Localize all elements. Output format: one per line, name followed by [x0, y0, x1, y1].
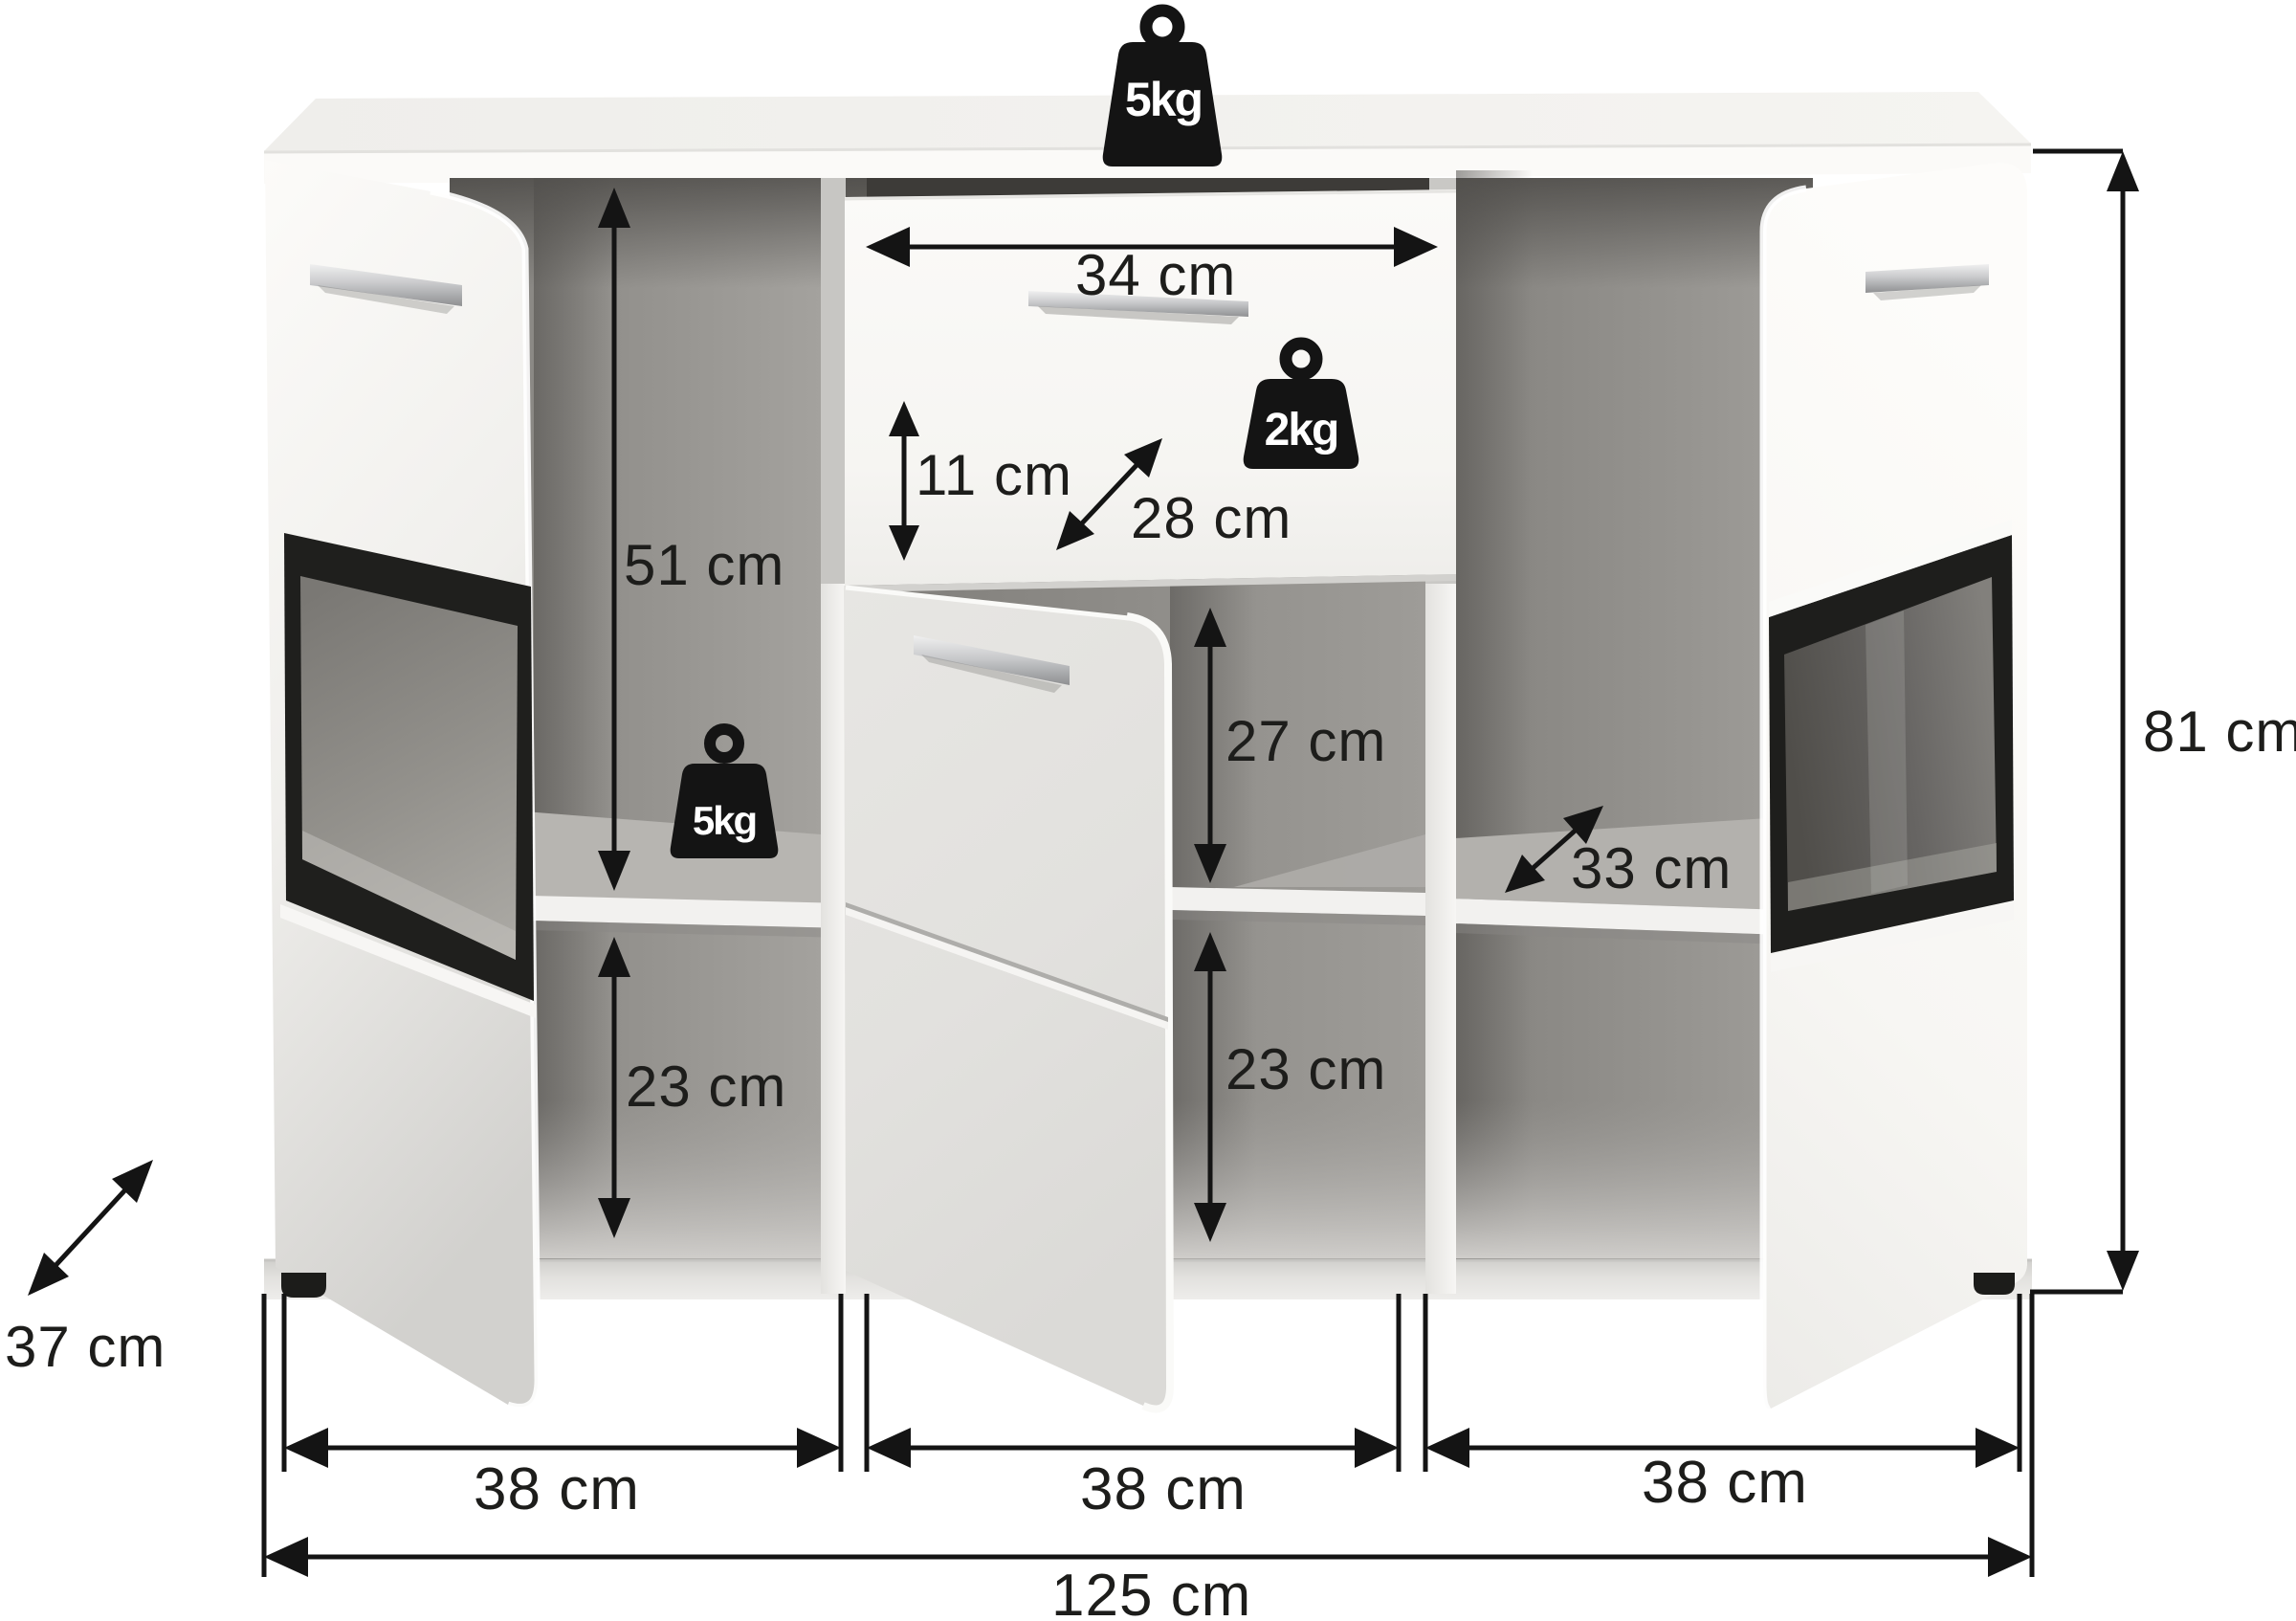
svg-text:37 cm: 37 cm: [5, 1315, 166, 1379]
svg-text:23 cm: 23 cm: [1225, 1037, 1386, 1101]
svg-text:34 cm: 34 cm: [1075, 243, 1236, 307]
svg-text:51 cm: 51 cm: [624, 533, 784, 597]
svg-text:38 cm: 38 cm: [474, 1456, 640, 1522]
svg-text:27 cm: 27 cm: [1225, 709, 1386, 773]
svg-text:38 cm: 38 cm: [1642, 1450, 1808, 1516]
svg-text:11 cm: 11 cm: [916, 443, 1072, 507]
svg-text:5kg: 5kg: [693, 798, 756, 843]
svg-text:81 cm: 81 cm: [2143, 699, 2296, 764]
svg-text:28 cm: 28 cm: [1131, 486, 1291, 550]
svg-text:38 cm: 38 cm: [1080, 1456, 1247, 1522]
svg-text:33 cm: 33 cm: [1571, 836, 1732, 900]
svg-text:125 cm: 125 cm: [1051, 1563, 1251, 1621]
svg-text:5kg: 5kg: [1125, 73, 1202, 126]
svg-text:23 cm: 23 cm: [626, 1055, 786, 1119]
svg-text:2kg: 2kg: [1265, 405, 1338, 455]
